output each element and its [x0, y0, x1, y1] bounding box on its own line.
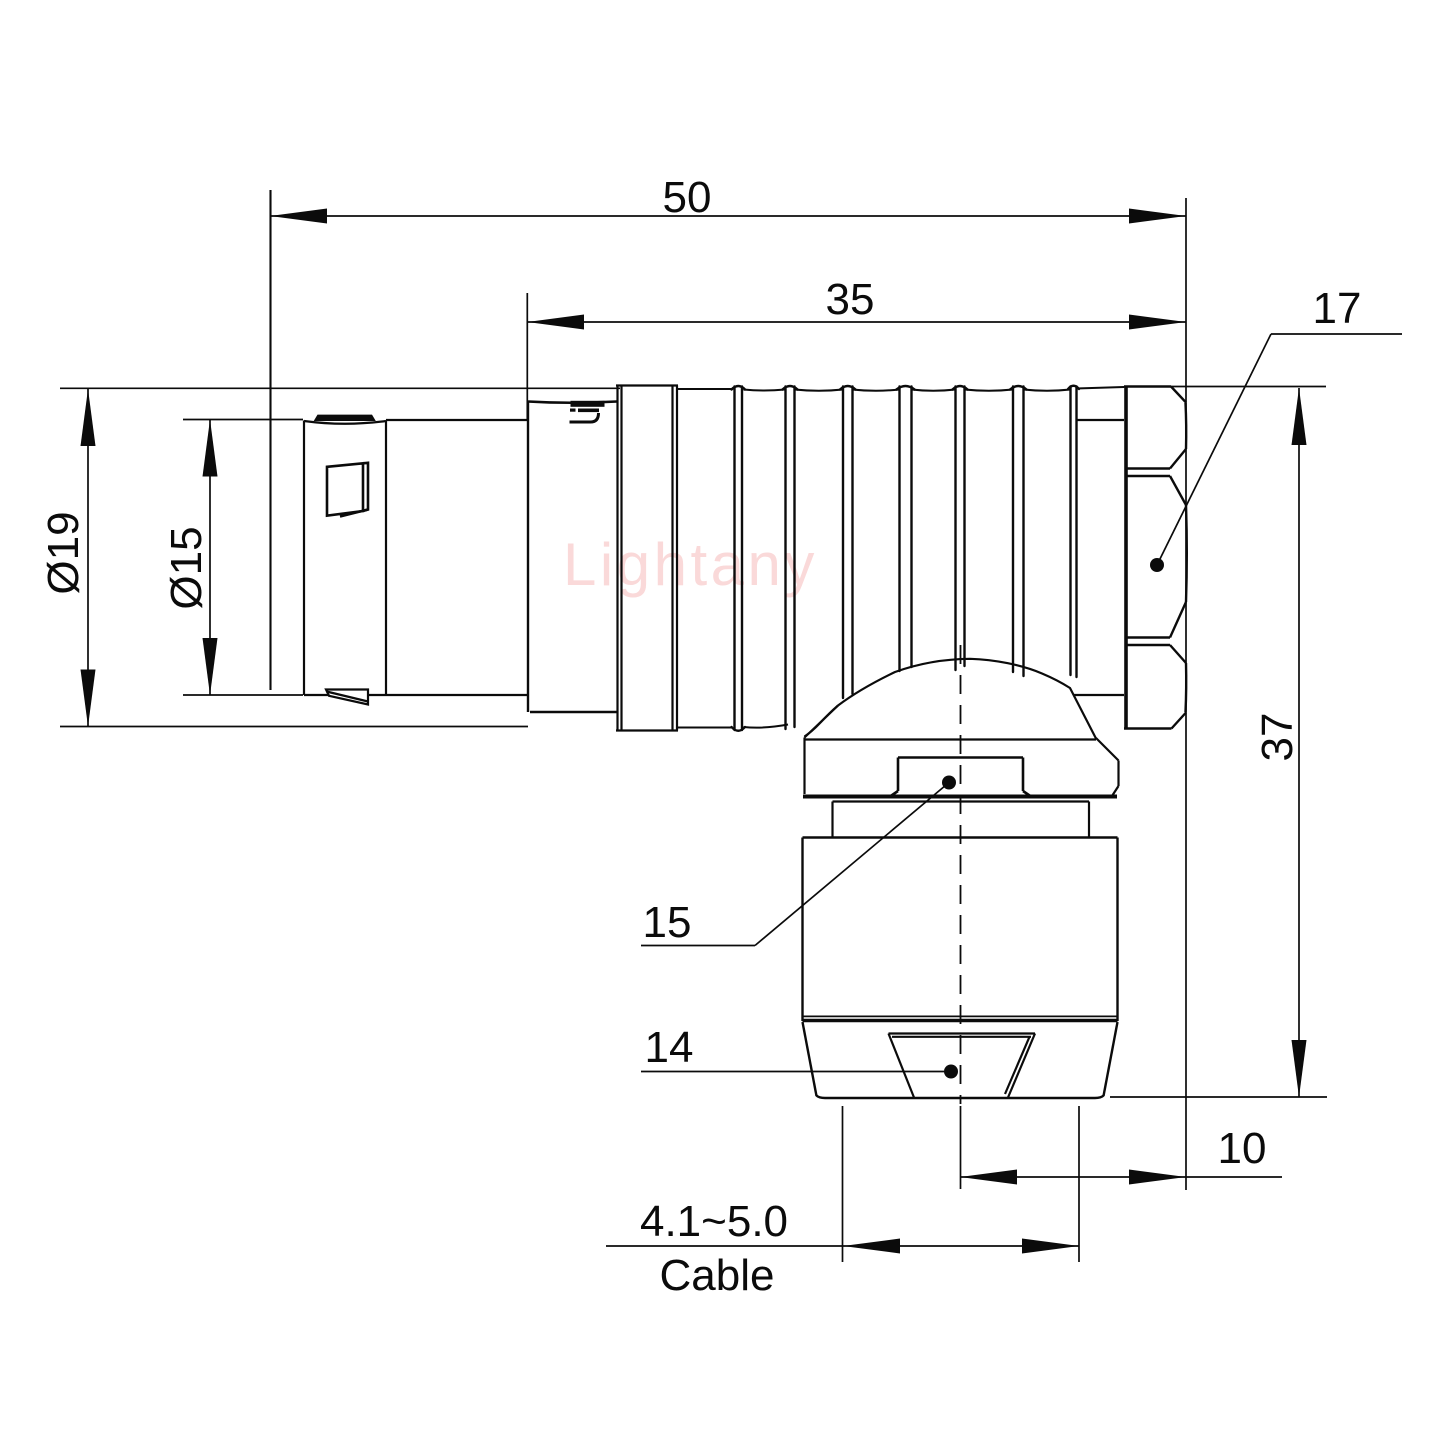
svg-text:Lightany: Lightany: [563, 531, 818, 598]
svg-text:50: 50: [663, 173, 712, 222]
svg-text:15: 15: [643, 898, 692, 947]
svg-text:37: 37: [1253, 713, 1302, 762]
svg-text:10: 10: [1218, 1124, 1267, 1173]
svg-text:Cable: Cable: [660, 1251, 775, 1300]
svg-text:Ø19: Ø19: [39, 511, 88, 594]
svg-text:35: 35: [826, 275, 875, 324]
svg-text:4.1~5.0: 4.1~5.0: [640, 1197, 788, 1246]
svg-text:Ø15: Ø15: [162, 526, 211, 609]
svg-text:14: 14: [645, 1023, 694, 1072]
svg-text:17: 17: [1313, 284, 1362, 333]
